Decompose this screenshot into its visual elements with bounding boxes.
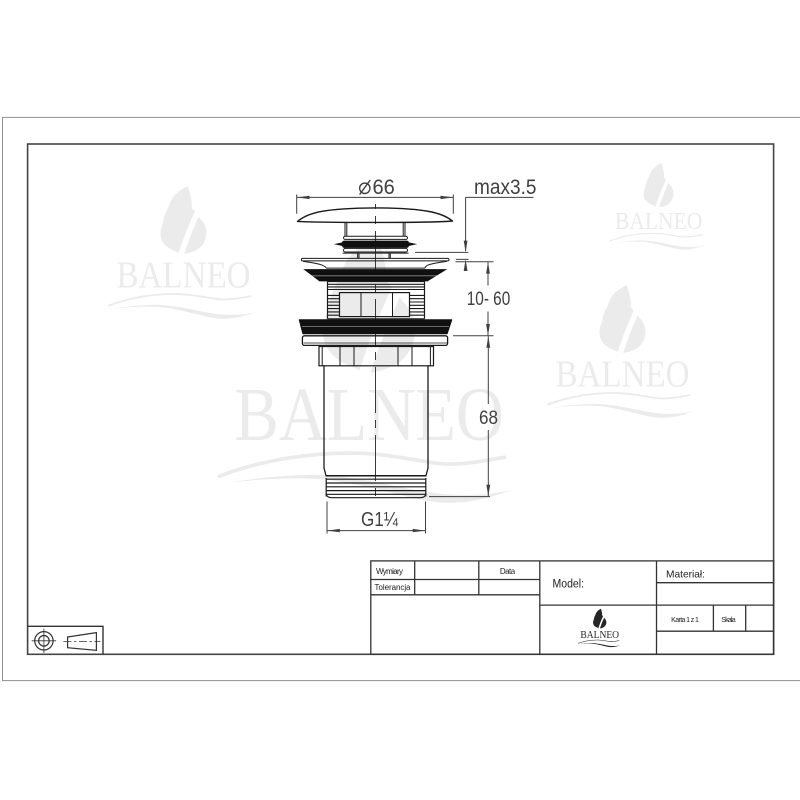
svg-text:max3.5: max3.5 <box>474 176 537 199</box>
svg-text:Wymiary: Wymiary <box>376 567 403 576</box>
svg-text:Skala: Skala <box>721 617 735 624</box>
svg-text:G1¼: G1¼ <box>361 508 399 531</box>
svg-text:68: 68 <box>479 407 498 429</box>
svg-text:10- 60: 10- 60 <box>467 288 511 310</box>
svg-text:66: 66 <box>373 176 395 199</box>
svg-text:Karta 1 z 1: Karta 1 z 1 <box>671 617 699 624</box>
svg-text:Tolerancja: Tolerancja <box>375 583 412 592</box>
svg-text:Model:: Model: <box>553 577 585 591</box>
svg-text:Data: Data <box>500 567 516 576</box>
svg-text:Materiał:: Materiał: <box>666 569 705 580</box>
